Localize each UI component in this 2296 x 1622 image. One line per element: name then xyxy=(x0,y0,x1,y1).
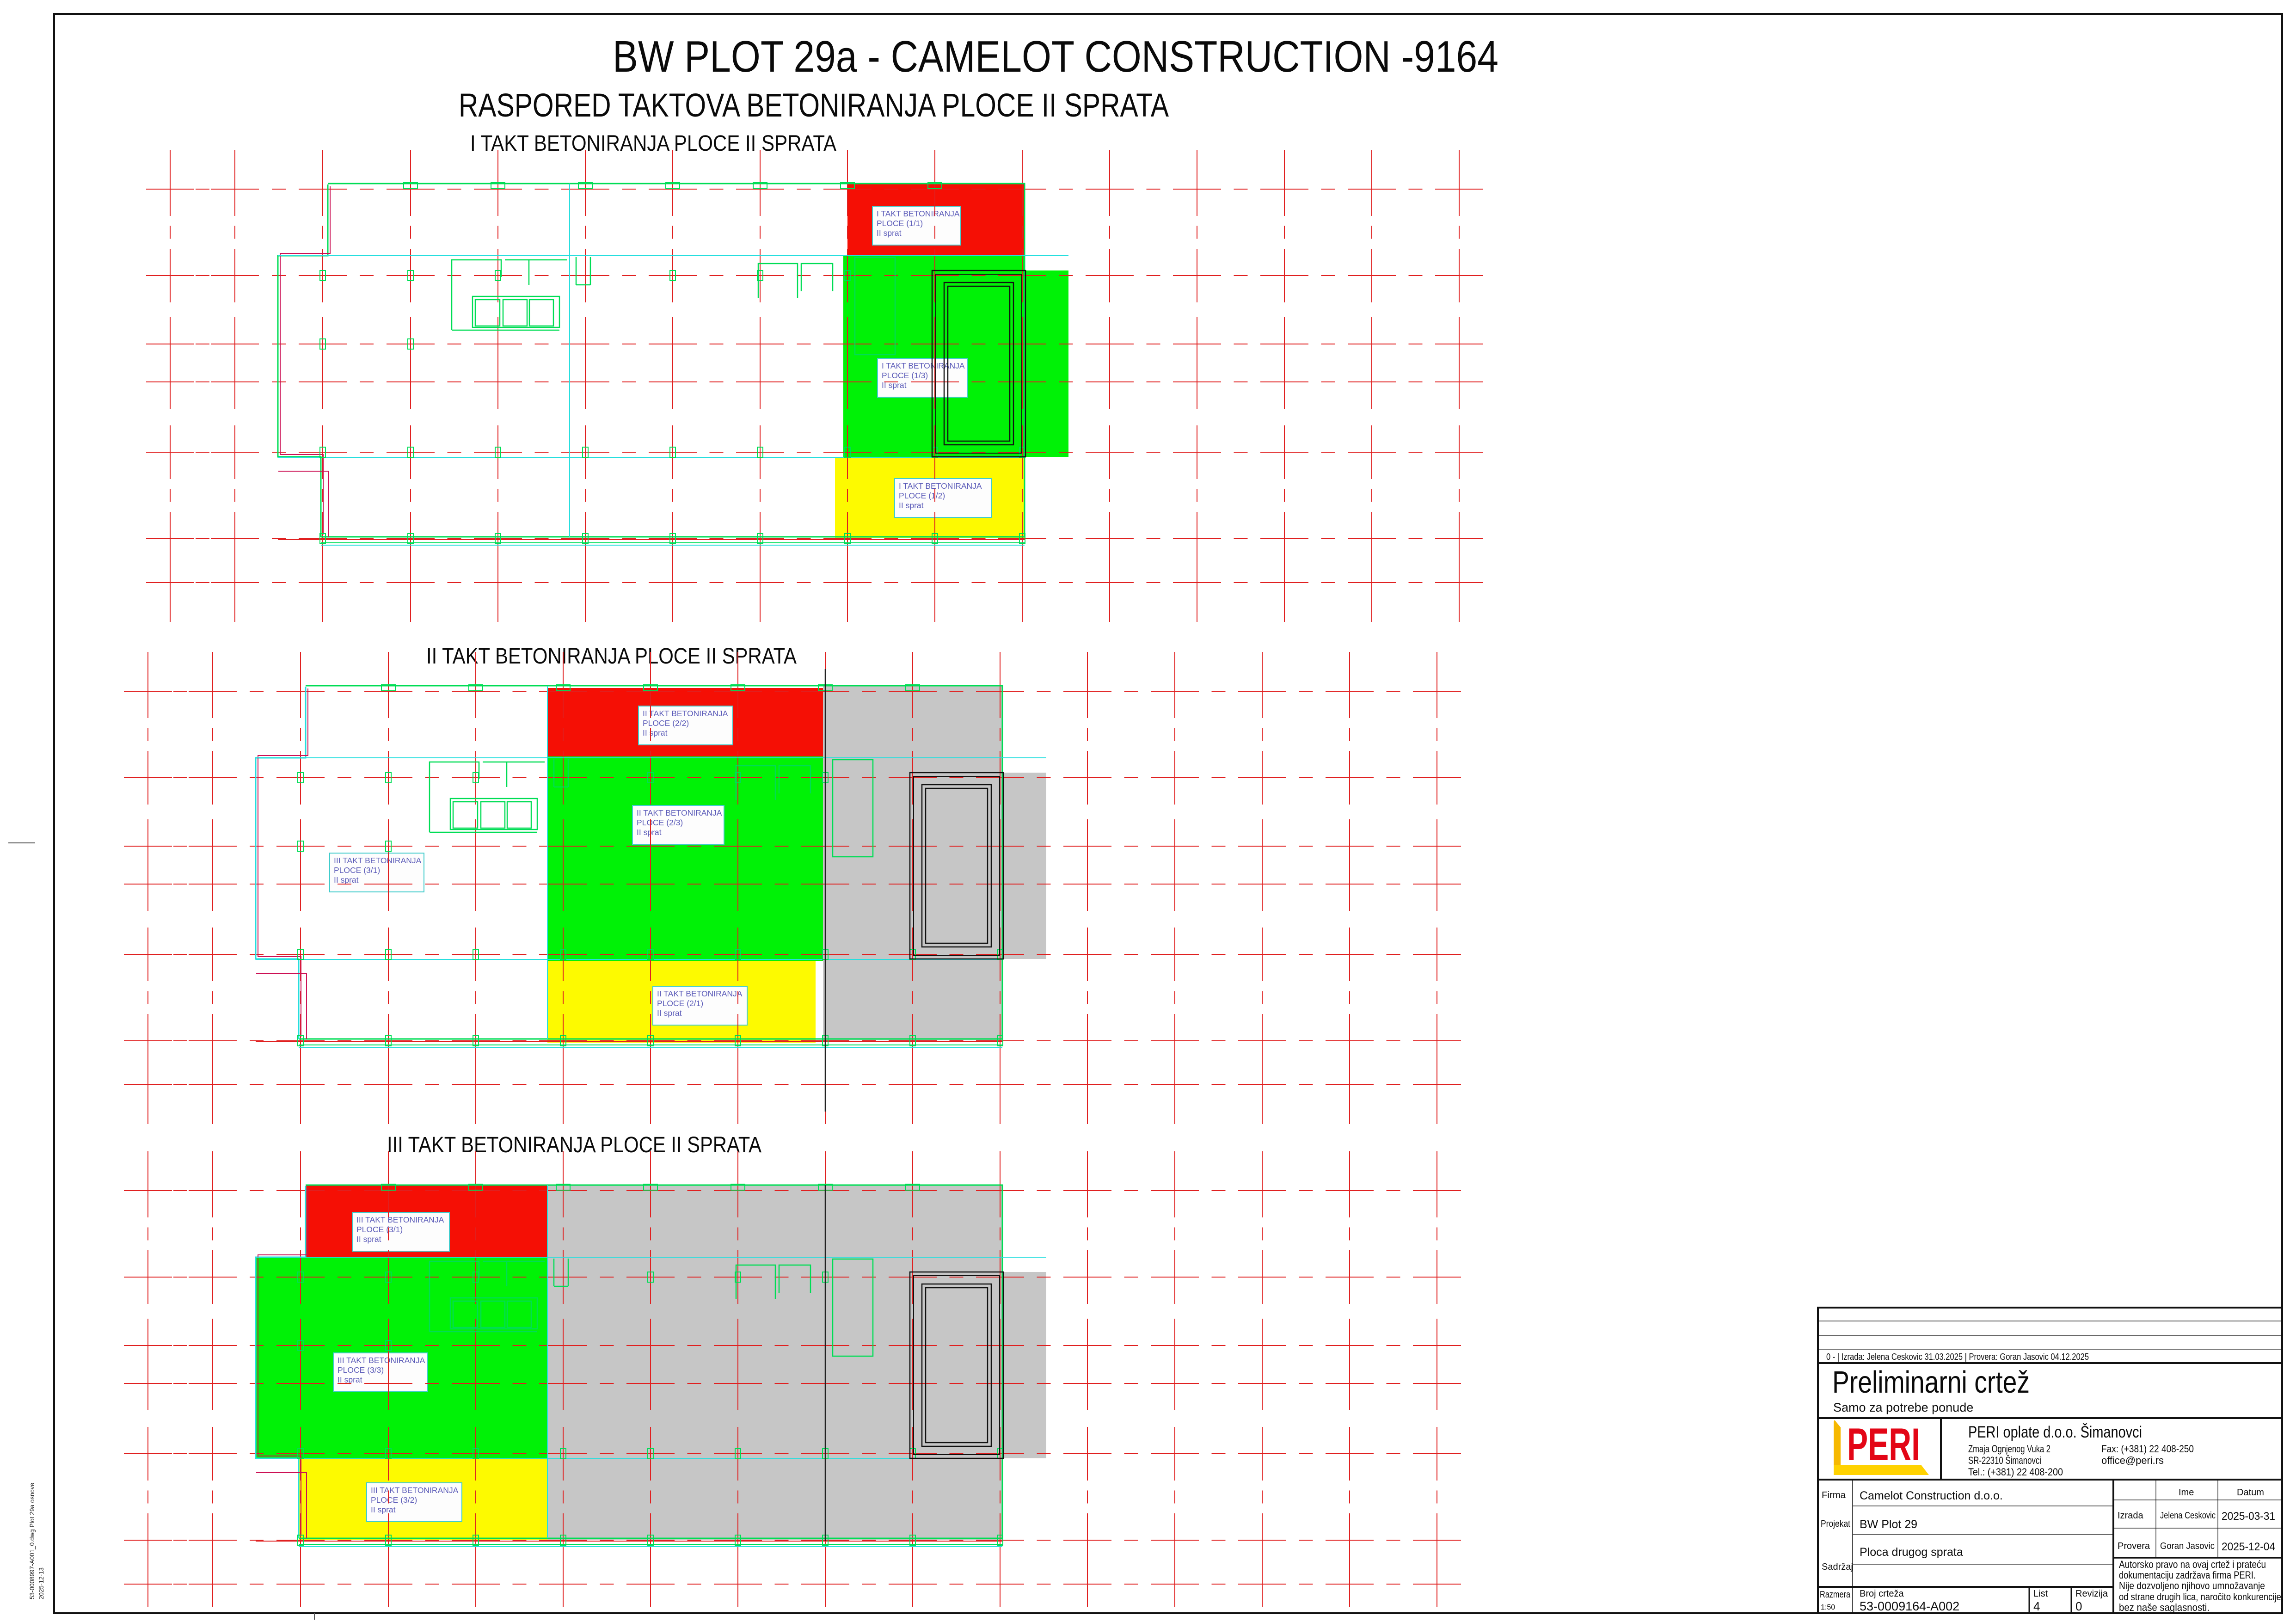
svg-text:RASPORED TAKTOVA BETONIRANJA P: RASPORED TAKTOVA BETONIRANJA PLOCE II SP… xyxy=(459,87,1169,124)
svg-text:PLOCE (3/3): PLOCE (3/3) xyxy=(338,1365,384,1375)
svg-text:II sprat: II sprat xyxy=(657,1008,682,1018)
svg-text:dokumentaciju zadržava firma P: dokumentaciju zadržava firma PERI. xyxy=(2119,1569,2256,1581)
svg-text:53-0009164-A002: 53-0009164-A002 xyxy=(1860,1599,1959,1613)
svg-text:PLOCE (1/2): PLOCE (1/2) xyxy=(899,491,945,500)
svg-text:Camelot Construction d.o.o.: Camelot Construction d.o.o. xyxy=(1860,1489,2003,1502)
svg-text:53-0008997-A001_0.dwg Plot 29a: 53-0008997-A001_0.dwg Plot 29a osnove xyxy=(29,1483,36,1599)
svg-text:Ime: Ime xyxy=(2179,1487,2194,1498)
svg-text:bez naše saglasnosti.: bez naše saglasnosti. xyxy=(2119,1602,2210,1613)
svg-text:II TAKT BETONIRANJA: II TAKT BETONIRANJA xyxy=(657,989,743,998)
svg-text:0: 0 xyxy=(2075,1599,2082,1613)
svg-text:SR-22310 Šimanovci: SR-22310 Šimanovci xyxy=(1968,1455,2041,1466)
svg-text:1:50: 1:50 xyxy=(1821,1604,1835,1611)
svg-text:PLOCE (2/3): PLOCE (2/3) xyxy=(637,818,683,827)
svg-text:II sprat: II sprat xyxy=(643,728,668,737)
svg-text:II TAKT BETONIRANJA PLOCE II S: II TAKT BETONIRANJA PLOCE II SPRATA xyxy=(426,644,797,669)
svg-text:Datum: Datum xyxy=(2237,1487,2264,1498)
svg-text:Provera: Provera xyxy=(2118,1541,2150,1551)
svg-text:I TAKT BETONIRANJA: I TAKT BETONIRANJA xyxy=(882,361,965,370)
svg-text:0 - | Izrada: Jelena Ceskovic: 0 - | Izrada: Jelena Ceskovic 31.03.2025… xyxy=(1826,1352,2089,1362)
svg-text:PLOCE (3/1): PLOCE (3/1) xyxy=(334,866,380,875)
svg-text:office@peri.rs: office@peri.rs xyxy=(2101,1455,2164,1466)
svg-text:I TAKT BETONIRANJA PLOCE II SP: I TAKT BETONIRANJA PLOCE II SPRATA xyxy=(470,131,836,156)
svg-text:Broj crteža: Broj crteža xyxy=(1860,1589,1904,1599)
svg-text:PERI oplate d.o.o. Šimanovci: PERI oplate d.o.o. Šimanovci xyxy=(1968,1423,2142,1441)
svg-text:List: List xyxy=(2033,1589,2048,1599)
svg-text:Revizija: Revizija xyxy=(2075,1589,2108,1599)
svg-text:PLOCE (1/1): PLOCE (1/1) xyxy=(877,219,923,228)
svg-text:2025-12-13: 2025-12-13 xyxy=(38,1567,45,1599)
svg-text:Fax: (+381) 22 408-250: Fax: (+381) 22 408-250 xyxy=(2101,1443,2194,1455)
svg-text:Samo za potrebe ponude: Samo za potrebe ponude xyxy=(1833,1401,1973,1414)
svg-text:Nije dozvoljeno njihovo umnoža: Nije dozvoljeno njihovo umnožavanje xyxy=(2119,1580,2265,1591)
svg-text:Tel.: (+381) 22 408-200: Tel.: (+381) 22 408-200 xyxy=(1968,1466,2063,1478)
svg-text:PLOCE (1/3): PLOCE (1/3) xyxy=(882,371,928,380)
svg-text:Zmaja Ognjenog Vuka 2: Zmaja Ognjenog Vuka 2 xyxy=(1968,1443,2050,1455)
svg-text:II TAKT BETONIRANJA: II TAKT BETONIRANJA xyxy=(637,808,722,817)
svg-text:II sprat: II sprat xyxy=(371,1505,396,1514)
svg-text:Sadržaj: Sadržaj xyxy=(1822,1562,1853,1572)
svg-text:II sprat: II sprat xyxy=(334,875,359,885)
svg-text:II TAKT BETONIRANJA: II TAKT BETONIRANJA xyxy=(643,709,728,718)
svg-text:BW PLOT 29a - CAMELOT CONSTRUC: BW PLOT 29a - CAMELOT CONSTRUCTION -9164 xyxy=(613,32,1498,81)
svg-text:II sprat: II sprat xyxy=(877,228,902,238)
svg-text:4: 4 xyxy=(2033,1599,2040,1613)
svg-text:III TAKT BETONIRANJA: III TAKT BETONIRANJA xyxy=(338,1356,425,1365)
svg-text:Jelena Ceskovic: Jelena Ceskovic xyxy=(2160,1511,2216,1521)
svg-text:Firma: Firma xyxy=(1822,1490,1846,1500)
svg-text:Ploca drugog sprata: Ploca drugog sprata xyxy=(1860,1546,1963,1559)
svg-text:III TAKT BETONIRANJA: III TAKT BETONIRANJA xyxy=(334,856,422,865)
svg-text:PLOCE (2/2): PLOCE (2/2) xyxy=(643,719,689,728)
svg-text:Razmera: Razmera xyxy=(1820,1590,1851,1600)
svg-text:II sprat: II sprat xyxy=(637,828,662,837)
svg-text:PLOCE (2/1): PLOCE (2/1) xyxy=(657,999,703,1008)
svg-text:2025-12-04: 2025-12-04 xyxy=(2222,1541,2275,1553)
svg-text:2025-03-31: 2025-03-31 xyxy=(2222,1510,2275,1523)
svg-text:III TAKT BETONIRANJA: III TAKT BETONIRANJA xyxy=(356,1215,444,1224)
svg-text:III TAKT BETONIRANJA PLOCE II: III TAKT BETONIRANJA PLOCE II SPRATA xyxy=(387,1133,761,1157)
svg-text:PLOCE (3/1): PLOCE (3/1) xyxy=(356,1225,403,1234)
svg-text:II sprat: II sprat xyxy=(356,1235,381,1244)
svg-text:PLOCE (3/2): PLOCE (3/2) xyxy=(371,1495,417,1505)
svg-text:I TAKT BETONIRANJA: I TAKT BETONIRANJA xyxy=(899,481,982,491)
svg-text:PERI: PERI xyxy=(1847,1419,1920,1470)
svg-text:od strane drugih lica, naročit: od strane drugih lica, naročito konkuren… xyxy=(2119,1591,2284,1603)
svg-text:Goran Jasovic: Goran Jasovic xyxy=(2160,1541,2215,1551)
svg-text:Izrada: Izrada xyxy=(2118,1511,2143,1521)
svg-text:I TAKT BETONIRANJA: I TAKT BETONIRANJA xyxy=(877,209,960,218)
svg-text:Projekat: Projekat xyxy=(1821,1519,1850,1529)
svg-text:BW Plot 29: BW Plot 29 xyxy=(1860,1518,1917,1531)
svg-text:III TAKT BETONIRANJA: III TAKT BETONIRANJA xyxy=(371,1486,459,1495)
svg-text:II sprat: II sprat xyxy=(899,501,924,510)
svg-text:Preliminarni crtež: Preliminarni crtež xyxy=(1832,1365,2030,1400)
svg-text:Autorsko pravo na ovaj crtež i: Autorsko pravo na ovaj crtež i prateću xyxy=(2119,1559,2266,1570)
